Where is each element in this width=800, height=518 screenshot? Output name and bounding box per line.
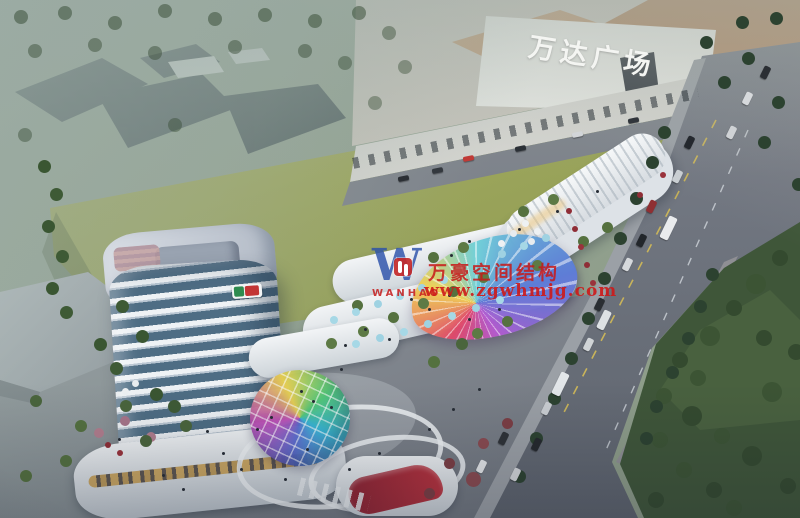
people-layer xyxy=(0,0,3,3)
tower-brand-logo xyxy=(232,283,263,299)
rainbow-glass-dome xyxy=(250,370,350,466)
haze-white-roof xyxy=(228,48,270,64)
aerial-render-scene: 万达广场 W WANHAO 万豪空间结构 www.zgwhmjg.com xyxy=(0,0,800,518)
